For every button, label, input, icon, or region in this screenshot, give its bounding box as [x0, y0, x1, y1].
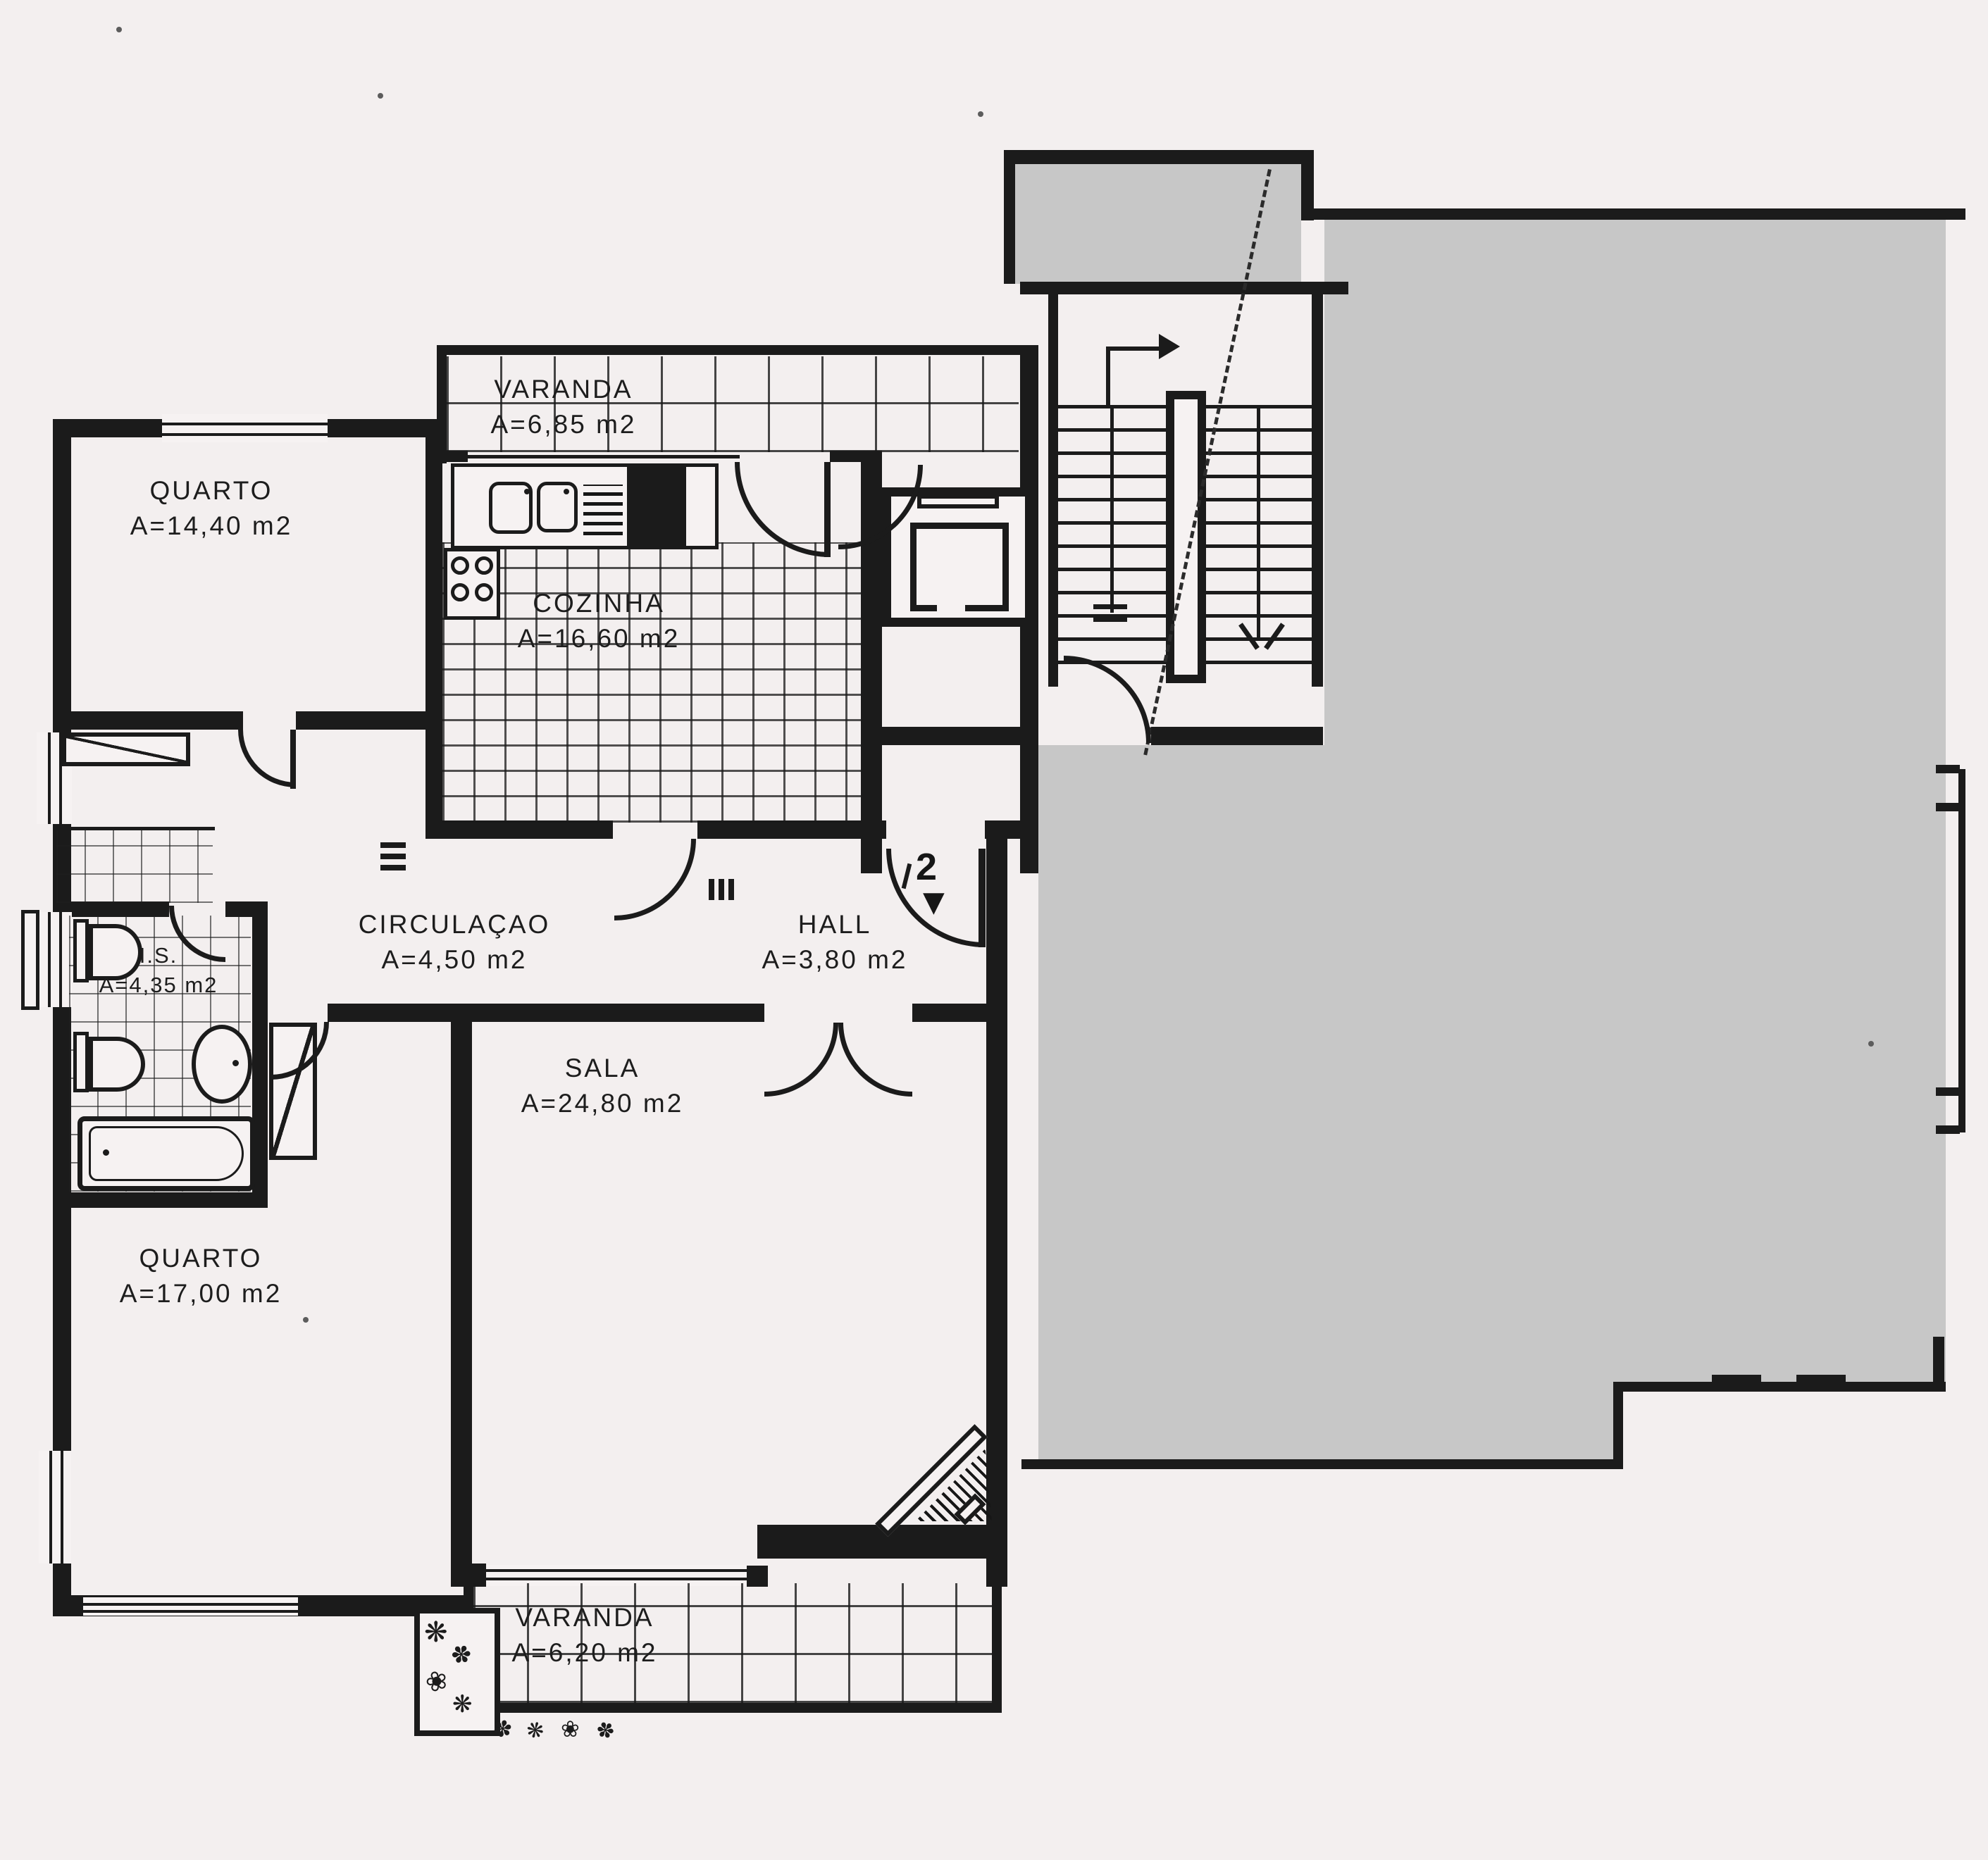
wall-segment	[1613, 1386, 1623, 1469]
room-name: CIRCULAÇAO	[359, 907, 551, 942]
stair-right-wall	[1312, 294, 1323, 687]
scan-speck	[978, 111, 983, 117]
sala-sliding-door	[486, 1569, 747, 1572]
scan-speck	[116, 27, 122, 32]
stair-left-wall	[1048, 294, 1058, 687]
room-label-circulacao: CIRCULAÇAO A=4,50 m2	[317, 907, 592, 978]
room-label-cozinha: COZINHA A=16,60 m2	[465, 586, 733, 656]
gray-mask-below-stairs	[1038, 745, 1402, 1461]
landing-wall	[1151, 727, 1323, 745]
kitchen-drainer	[583, 485, 623, 535]
corridor-north-wall	[425, 820, 613, 839]
stair-railing	[1106, 347, 1110, 406]
window-mark	[1796, 1375, 1846, 1382]
room-label-is: I.S. A=4,35 m2	[85, 941, 232, 1000]
wall-segment	[1004, 150, 1015, 284]
quarto1-door-arc	[238, 730, 296, 787]
kitchen-north-wall	[425, 451, 468, 462]
window-quarto1-top	[162, 423, 328, 425]
quarto1-door-leaf	[290, 730, 296, 789]
room-area: A=4,50 m2	[382, 942, 528, 978]
bidet	[89, 1037, 145, 1092]
quarto1-south-wall	[53, 711, 243, 730]
room-name: COZINHA	[533, 586, 665, 621]
scan-speck	[303, 1317, 309, 1323]
kitchen-west-wall	[425, 419, 442, 839]
elevator-door-gap	[937, 604, 965, 613]
stair-top-wall	[1020, 282, 1348, 294]
window-quarto1-top	[162, 414, 328, 442]
elevator-car	[910, 523, 1009, 611]
stair-guide-line	[1257, 405, 1260, 637]
kitchen-sink	[537, 482, 578, 532]
is-south-wall	[53, 1192, 268, 1208]
room-area: A=4,35 m2	[99, 970, 218, 1000]
room-label-sala: SALA A=24,80 m2	[465, 1051, 740, 1121]
window-mark	[1712, 1375, 1761, 1382]
room-name: VARANDA	[515, 1600, 654, 1635]
window-quarto2-bottom	[83, 1597, 298, 1616]
room-area: A=6,85 m2	[491, 407, 637, 442]
window-quarto1-top	[162, 433, 328, 436]
bathtub-inner	[89, 1126, 244, 1181]
window-quarto2-bottom	[83, 1610, 298, 1613]
window-quarto2-left	[61, 1451, 63, 1563]
plant-icon: ❀	[561, 1716, 580, 1742]
scan-speck	[378, 93, 383, 99]
stair-guide-line	[1110, 405, 1114, 613]
room-area: A=6,20 m2	[512, 1635, 658, 1671]
window-sill	[21, 910, 39, 1010]
window-is-left	[39, 912, 72, 1007]
faucet-dot	[564, 489, 569, 494]
room-label-quarto-top: QUARTO A=14,40 m2	[77, 473, 345, 544]
room-label-hall: HALL A=3,80 m2	[726, 907, 944, 978]
wall-segment	[1021, 1459, 1622, 1469]
stair-break-tick	[1093, 617, 1127, 622]
threshold-tick	[380, 842, 406, 848]
sala-double-door-arc	[764, 1023, 838, 1097]
room-label-quarto-bottom: QUARTO A=17,00 m2	[67, 1241, 335, 1311]
stair-spine-core	[1174, 399, 1198, 675]
plant-icon: ❋	[424, 1616, 448, 1649]
sala-sliding-door	[486, 1578, 747, 1580]
room-label-varanda-bottom: VARANDA A=6,20 m2	[451, 1600, 719, 1671]
room-area: A=3,80 m2	[762, 942, 908, 978]
plant-icon: ❋	[452, 1690, 473, 1718]
sala-east-wall	[986, 839, 1007, 1587]
vestibule-edge	[56, 827, 215, 830]
plant-icon: ❋	[522, 1716, 549, 1746]
window-is-left	[48, 912, 51, 1007]
varanda-rail	[464, 1703, 1002, 1713]
window-quarto2-bottom	[83, 1603, 298, 1606]
sala-double-door-arc	[838, 1023, 912, 1097]
bathtub-drain	[103, 1149, 109, 1156]
wall-tick	[1936, 765, 1960, 773]
varanda-rail	[437, 345, 1030, 355]
room-area: A=14,40 m2	[130, 508, 293, 544]
room-cozinha-floor	[442, 542, 861, 823]
wall-tick	[1936, 1125, 1960, 1134]
gray-mask-bottom-step	[1402, 1386, 1613, 1461]
landing-wall	[882, 727, 1030, 745]
threshold-tick	[380, 854, 406, 859]
washbasin-drain	[232, 1060, 239, 1066]
stove-burner-icon	[451, 556, 469, 575]
window-quarto2-left	[49, 1451, 52, 1563]
corridor-south-wall	[328, 1004, 764, 1022]
threshold-tick	[728, 879, 734, 900]
room-area: A=24,80 m2	[521, 1086, 684, 1121]
window-quarto2-left	[39, 1451, 71, 1563]
threshold-tick	[709, 879, 714, 900]
kitchen-corridor-door-arc	[614, 839, 696, 920]
varanda-rail	[992, 1587, 1002, 1713]
stair-break-tick	[1093, 604, 1127, 609]
room-name: QUARTO	[139, 1241, 263, 1276]
stair-railing	[1106, 347, 1162, 351]
wall-segment	[1310, 208, 1965, 220]
wall-tick	[1936, 803, 1960, 811]
window-corridor-left	[48, 732, 51, 824]
room-area: A=16,60 m2	[518, 621, 681, 656]
scanned-floor-plan-page: { "document": { "type": "apartment-floor…	[0, 0, 1988, 1860]
wall-segment	[1004, 150, 1314, 164]
bidet	[73, 1032, 89, 1092]
vestibule-floor	[56, 830, 213, 903]
entrance-door-leaf	[979, 849, 986, 947]
quarto1-south-wall	[296, 711, 425, 730]
wall-segment	[1933, 1337, 1944, 1392]
room-name: QUARTO	[150, 473, 273, 508]
scan-speck	[1868, 1041, 1874, 1047]
wall-tick	[1936, 1087, 1960, 1096]
threshold-tick	[380, 865, 406, 870]
room-label-varanda-top: VARANDA A=6,85 m2	[437, 372, 690, 442]
wardrobe	[62, 732, 190, 766]
entrance-number: 2	[916, 845, 937, 889]
hall-north-wall	[697, 820, 886, 839]
quarto2-door-arc	[271, 1022, 329, 1080]
kitchen-north-door-leaf	[824, 462, 831, 557]
faucet-dot	[524, 489, 530, 494]
wall-segment	[1958, 769, 1965, 1132]
room-name: HALL	[798, 907, 872, 942]
room-name: I.S.	[139, 941, 178, 970]
elevator-counterweight	[917, 494, 999, 508]
room-name: SALA	[565, 1051, 640, 1086]
stair-up-arrow-icon	[1159, 334, 1180, 359]
gray-mask-right	[1324, 220, 1946, 1386]
wall-segment	[1613, 1382, 1946, 1392]
plant-icon: ✽	[590, 1716, 620, 1746]
window-is-left	[59, 912, 62, 1007]
room-name: VARANDA	[494, 372, 633, 407]
kitchen-window	[468, 455, 740, 458]
threshold-tick	[719, 879, 724, 900]
kitchen-appliance	[627, 465, 686, 548]
washbasin	[192, 1025, 252, 1104]
stove-burner-icon	[475, 556, 493, 575]
room-area: A=17,00 m2	[120, 1276, 282, 1311]
